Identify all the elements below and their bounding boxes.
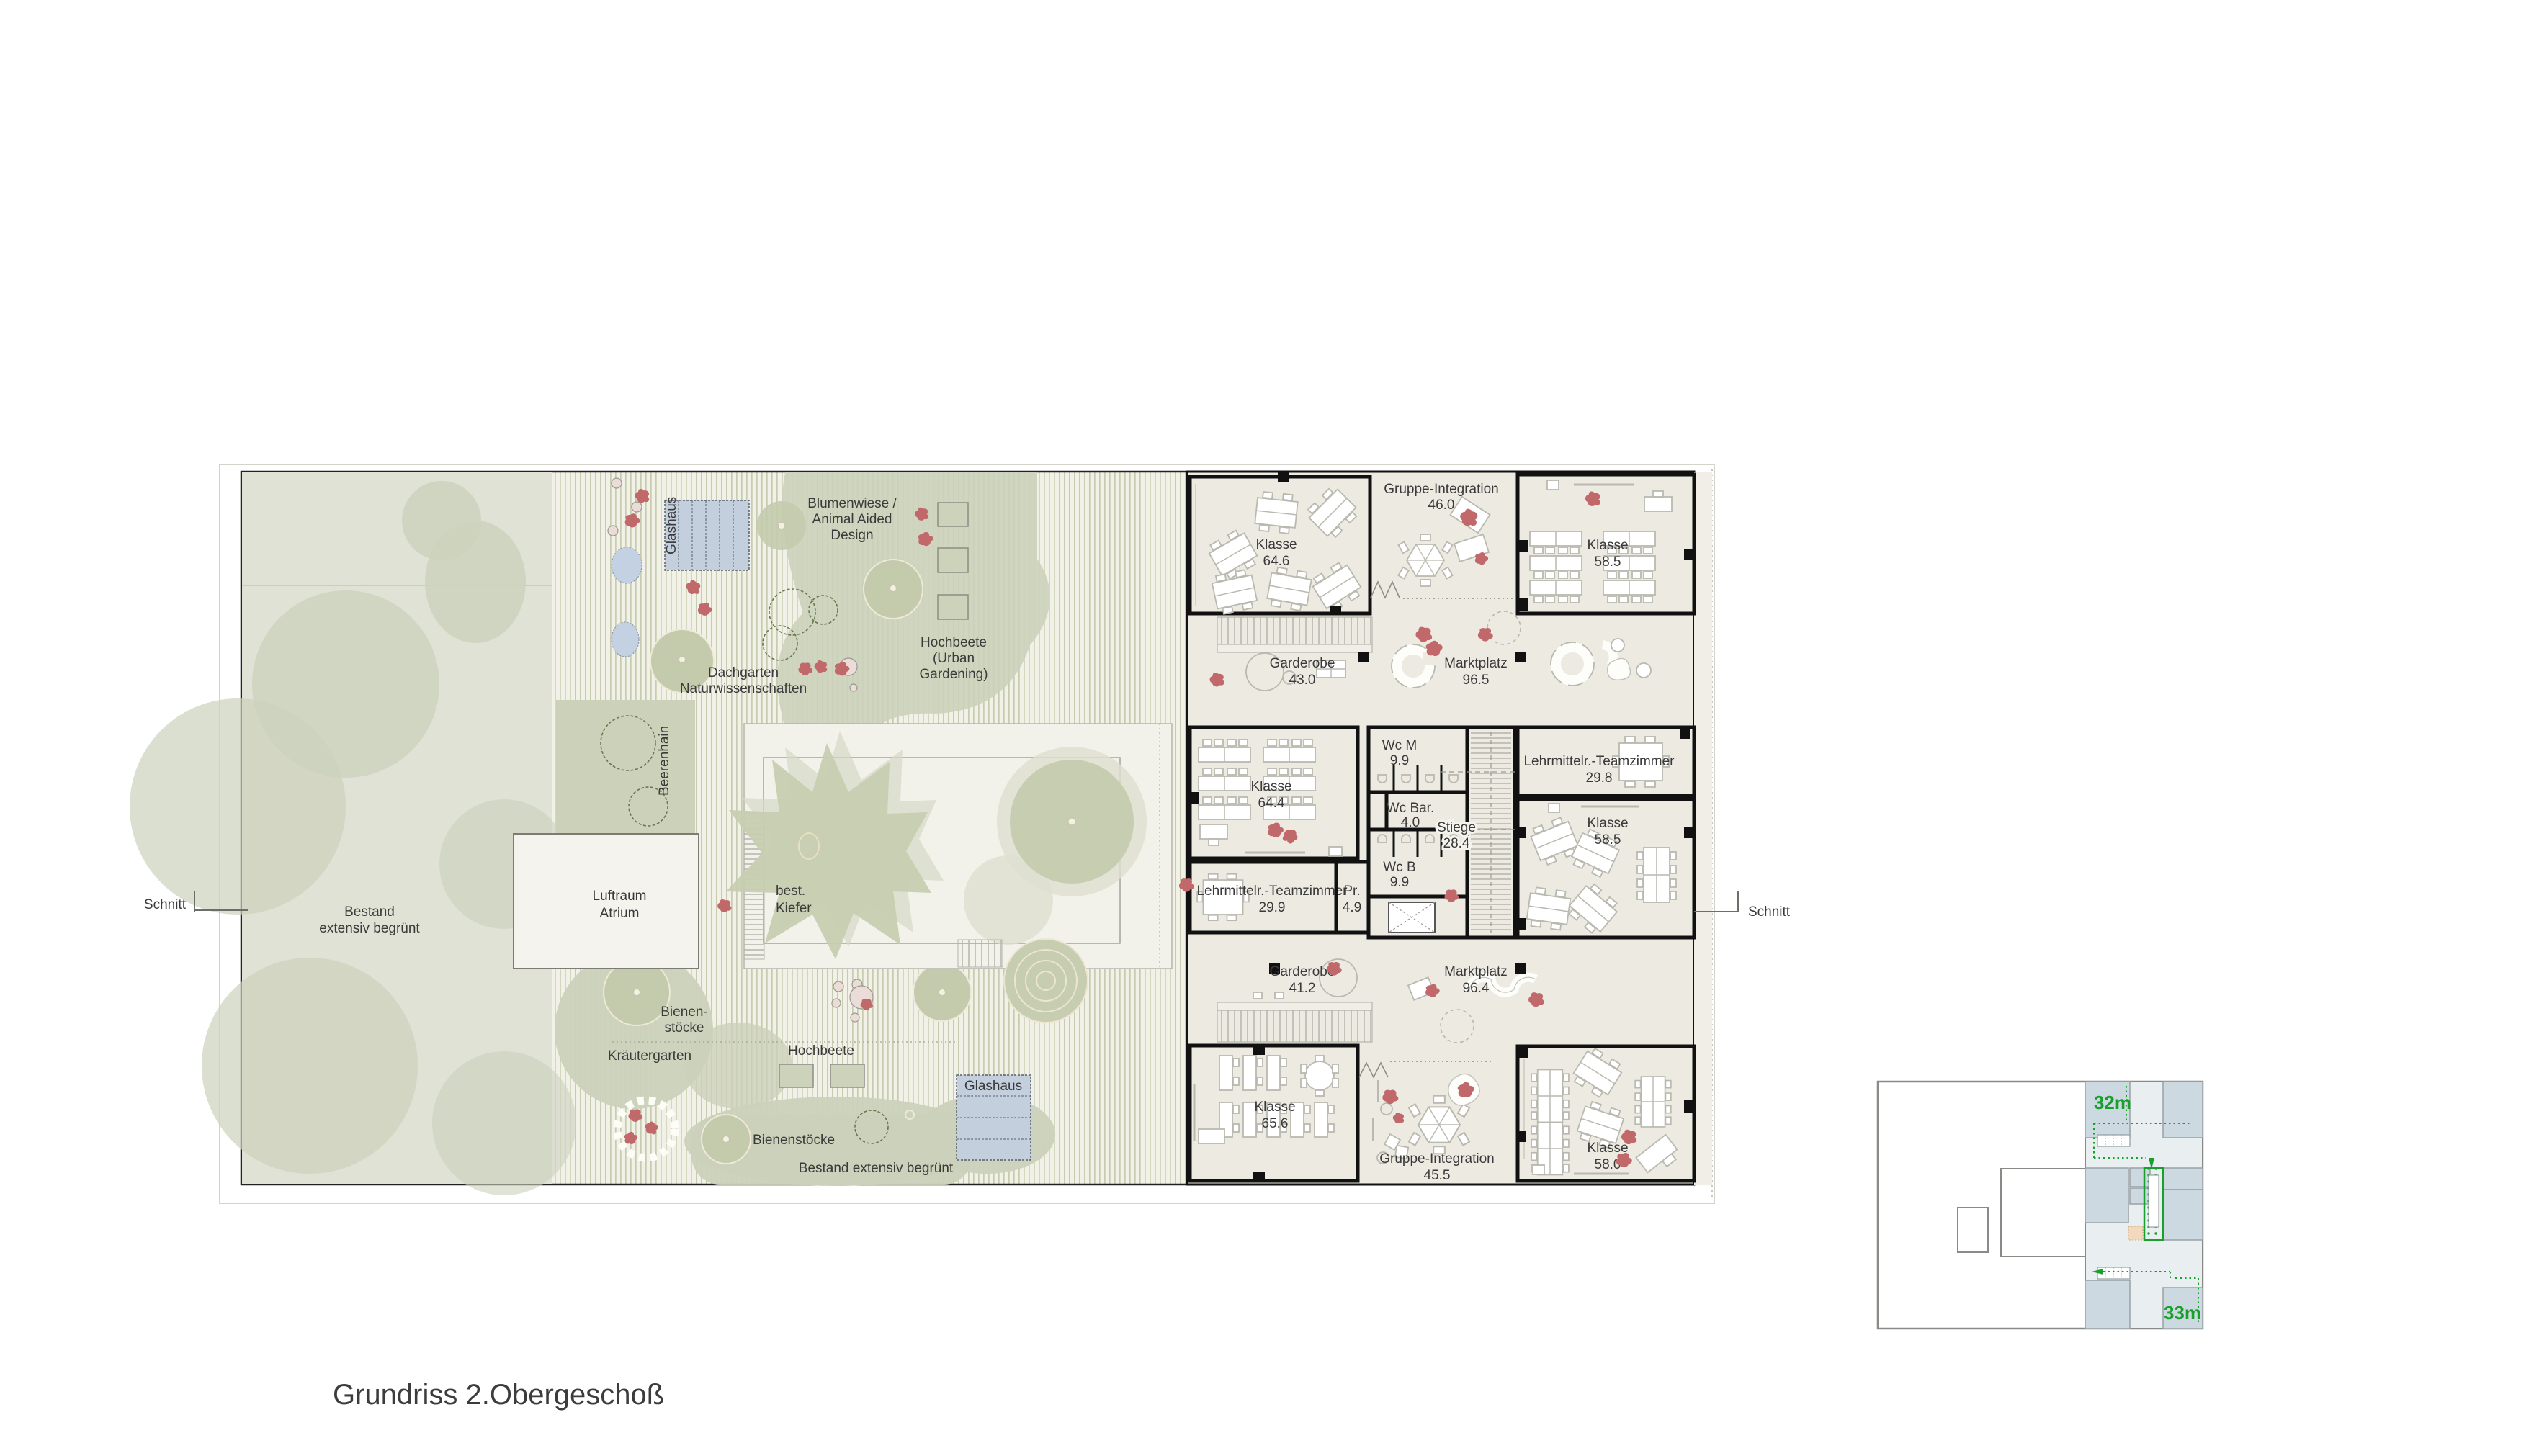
label-glashaus-bottom: Glashaus	[964, 1079, 1022, 1094]
label-bienen-2: stöcke	[665, 1020, 704, 1035]
room-area: 96.5	[1463, 673, 1490, 688]
label-hochbeete-urban-1: Hochbeete	[921, 635, 987, 650]
room-area: 9.9	[1390, 753, 1409, 768]
room-area: 96.4	[1463, 981, 1490, 996]
room-area: 4.0	[1401, 815, 1420, 830]
label-schnitt-left: Schnitt	[144, 897, 187, 912]
key-plan: 32m 33m	[1878, 1082, 2203, 1329]
label-hochbeete-urban-2: (Urban	[933, 651, 975, 666]
extensive-green-roof-left	[130, 472, 576, 1195]
label-bienen-1: Bienen-	[661, 1005, 708, 1020]
glasshouse-bottom: Glashaus	[957, 1075, 1031, 1160]
room-label: Wc M	[1382, 738, 1418, 753]
room-area: 64.6	[1263, 554, 1290, 569]
room-label: Gruppe-Integration	[1379, 1151, 1495, 1167]
room-area: 41.2	[1289, 981, 1316, 996]
raised-beds-right	[938, 503, 968, 619]
room-area: 28.4	[1443, 836, 1470, 851]
keyplan-block-mid	[2001, 1169, 2085, 1257]
label-kiefer-2: Kiefer	[776, 901, 812, 916]
elevator	[1389, 902, 1435, 933]
label-kraeutergarten: Kräutergarten	[608, 1048, 691, 1064]
room-label: Garderobe	[1270, 964, 1335, 979]
room-area: 9.9	[1390, 875, 1409, 890]
building-plan: Klasse 64.6 Gruppe-Integration 46.0 Klas…	[1187, 472, 1712, 1185]
room-label: Klasse	[1255, 537, 1297, 552]
label-hochbeete-bottom: Hochbeete	[788, 1043, 854, 1059]
keyplan-block-small	[1958, 1208, 1988, 1252]
floor-plan-drawing: Bestand extensiv begrünt Beerenhain	[0, 0, 2521, 1456]
label-glashaus-top: Glashaus	[664, 497, 679, 554]
room-area: 45.5	[1424, 1168, 1451, 1183]
label-bestand-left-1: Bestand	[344, 904, 395, 920]
room-label: Klasse	[1587, 1141, 1628, 1156]
keyplan-building	[2085, 1082, 2203, 1329]
room-area: 46.0	[1428, 498, 1455, 513]
label-bienenstoecke: Bienenstöcke	[753, 1133, 835, 1148]
label-schnitt-right: Schnitt	[1748, 904, 1791, 920]
label-kiefer-1: best.	[776, 884, 805, 899]
label-luftraum-2: Atrium	[600, 906, 640, 921]
beerenhain-area: Beerenhain	[556, 700, 695, 835]
label-dachgarten-1: Dachgarten	[708, 665, 779, 680]
room-label: Klasse	[1587, 538, 1628, 553]
room-label: Garderobe	[1270, 656, 1335, 671]
room-label: Gruppe-Integration	[1384, 482, 1499, 497]
drawing-title: Grundriss 2.Obergeschoß	[333, 1379, 664, 1411]
building-right-margin	[1694, 472, 1712, 1185]
label-blumenwiese-3: Design	[830, 528, 873, 543]
room-label: Lehrmittelr.-Teamzimmer	[1196, 884, 1348, 899]
glasshouse-top: Glashaus	[664, 497, 749, 570]
label-beerenhain: Beerenhain	[657, 726, 672, 796]
label-luftraum-1: Luftraum	[593, 889, 647, 904]
label-hochbeete-urban-3: Gardening)	[919, 667, 988, 682]
room-area: 65.6	[1262, 1116, 1289, 1131]
room-area: 29.8	[1586, 770, 1613, 786]
room-label: Marktplatz	[1444, 964, 1508, 979]
label-bestand-bottom: Bestand extensiv begrünt	[799, 1161, 954, 1176]
room-area: 43.0	[1289, 673, 1316, 688]
label-dachgarten-2: Naturwissenschaften	[680, 681, 807, 696]
keyplan-highlight-peach	[2128, 1226, 2143, 1240]
room-area: 58.5	[1595, 554, 1621, 570]
room-area: 29.9	[1259, 900, 1286, 915]
room-label: Klasse	[1250, 779, 1291, 794]
room-label: Lehrmittelr.-Teamzimmer	[1523, 754, 1675, 769]
room-label: Pr.	[1343, 884, 1360, 899]
room-label: Klasse	[1587, 816, 1628, 831]
label-blumenwiese-2: Animal Aided	[812, 512, 892, 527]
room-label: Marktplatz	[1444, 656, 1508, 671]
room-label: Stiege	[1437, 820, 1476, 835]
label-bestand-left-2: extensiv begrünt	[319, 921, 420, 936]
room-area: 58.5	[1595, 832, 1621, 848]
room-area: 64.4	[1258, 796, 1285, 811]
label-blumenwiese-1: Blumenwiese /	[807, 496, 897, 511]
atrium-void: Luftraum Atrium	[514, 834, 699, 969]
roof-garden: Bestand extensiv begrünt Beerenhain	[130, 472, 1187, 1195]
room-label: Klasse	[1254, 1100, 1295, 1115]
floor-plan-sheet: Bestand extensiv begrünt Beerenhain	[0, 0, 2521, 1456]
keyplan-dim-top: 32m	[2094, 1092, 2131, 1113]
amphitheatre-steps	[1004, 939, 1088, 1023]
keyplan-dim-bottom: 33m	[2164, 1302, 2201, 1324]
room-label: Wc Bar.	[1387, 801, 1435, 816]
room-area: 4.9	[1343, 900, 1361, 915]
room-label: Wc B	[1383, 860, 1415, 875]
